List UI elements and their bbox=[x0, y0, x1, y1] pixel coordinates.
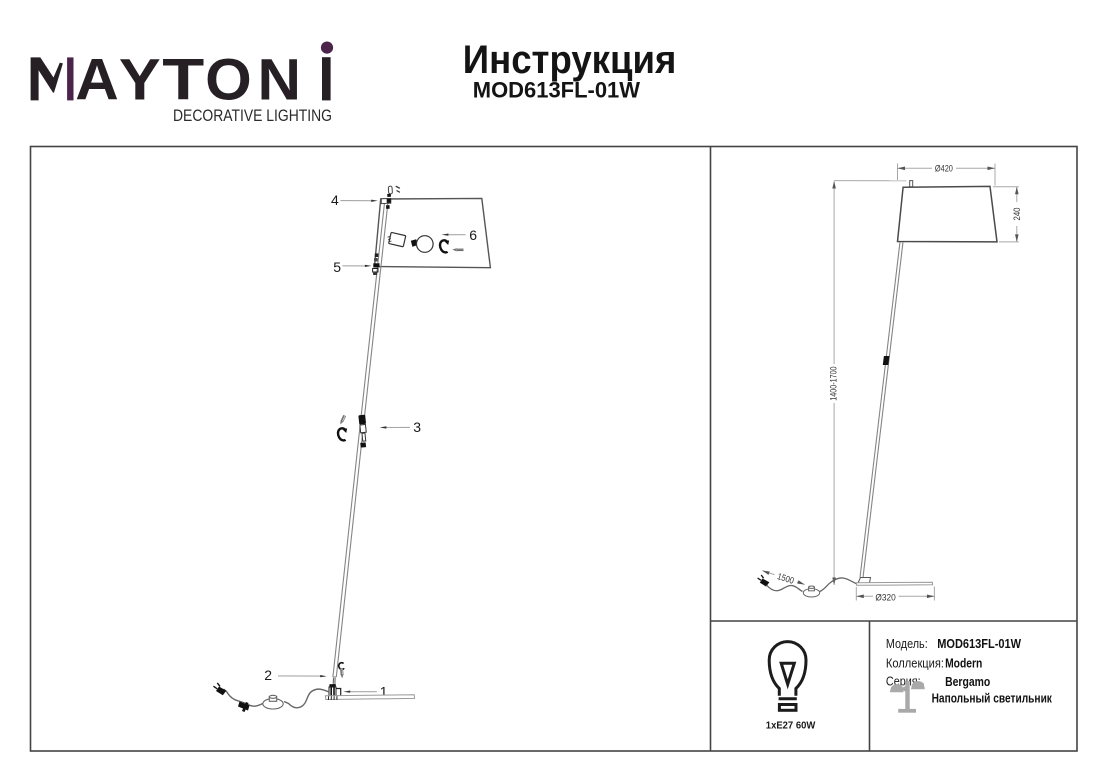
svg-text:DECORATIVE LIGHTING: DECORATIVE LIGHTING bbox=[173, 107, 332, 125]
svg-text:1400-1700: 1400-1700 bbox=[829, 366, 839, 400]
svg-text:MOD613FL-01W: MOD613FL-01W bbox=[473, 78, 640, 103]
svg-text:6: 6 bbox=[469, 227, 477, 243]
svg-text:2: 2 bbox=[264, 667, 272, 683]
svg-text:N: N bbox=[258, 48, 302, 113]
svg-text:5: 5 bbox=[333, 259, 341, 275]
svg-text:MOD613FL-01W: MOD613FL-01W bbox=[937, 637, 1021, 651]
svg-text:Инструкция: Инструкция bbox=[463, 38, 677, 82]
svg-text:Ø320: Ø320 bbox=[875, 592, 895, 602]
svg-text:Y: Y bbox=[119, 48, 161, 113]
svg-text:Modern: Modern bbox=[945, 657, 982, 671]
svg-text:Ø420: Ø420 bbox=[935, 163, 953, 173]
svg-text:3: 3 bbox=[413, 419, 421, 435]
svg-text:240: 240 bbox=[1012, 208, 1022, 221]
svg-text:A: A bbox=[75, 48, 119, 113]
svg-text:1xE27 60W: 1xE27 60W bbox=[766, 720, 816, 731]
svg-text:O: O bbox=[205, 48, 252, 113]
svg-text:T: T bbox=[162, 48, 204, 113]
svg-text:4: 4 bbox=[331, 192, 339, 208]
svg-text:1500: 1500 bbox=[776, 571, 795, 586]
svg-text:Напольный светильник: Напольный светильник bbox=[932, 692, 1053, 706]
svg-text:Коллекция:: Коллекция: bbox=[886, 657, 944, 671]
svg-text:Bergamo: Bergamo bbox=[945, 675, 990, 689]
svg-text:Модель:: Модель: bbox=[886, 637, 928, 651]
